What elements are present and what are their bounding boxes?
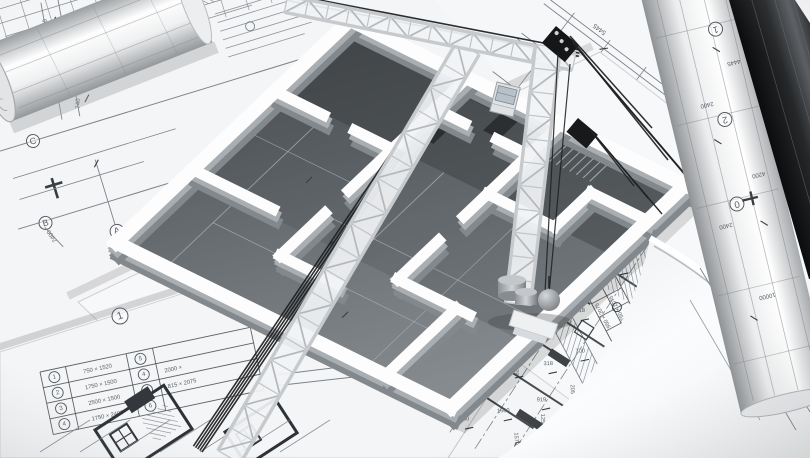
scene-svg: CBA7402050150018502400 54452400D5 BA1544… bbox=[0, 0, 810, 458]
vignette-overlay bbox=[0, 0, 810, 458]
blueprint-crane-scene: CBA7402050150018502400 54452400D5 BA1544… bbox=[0, 0, 810, 458]
